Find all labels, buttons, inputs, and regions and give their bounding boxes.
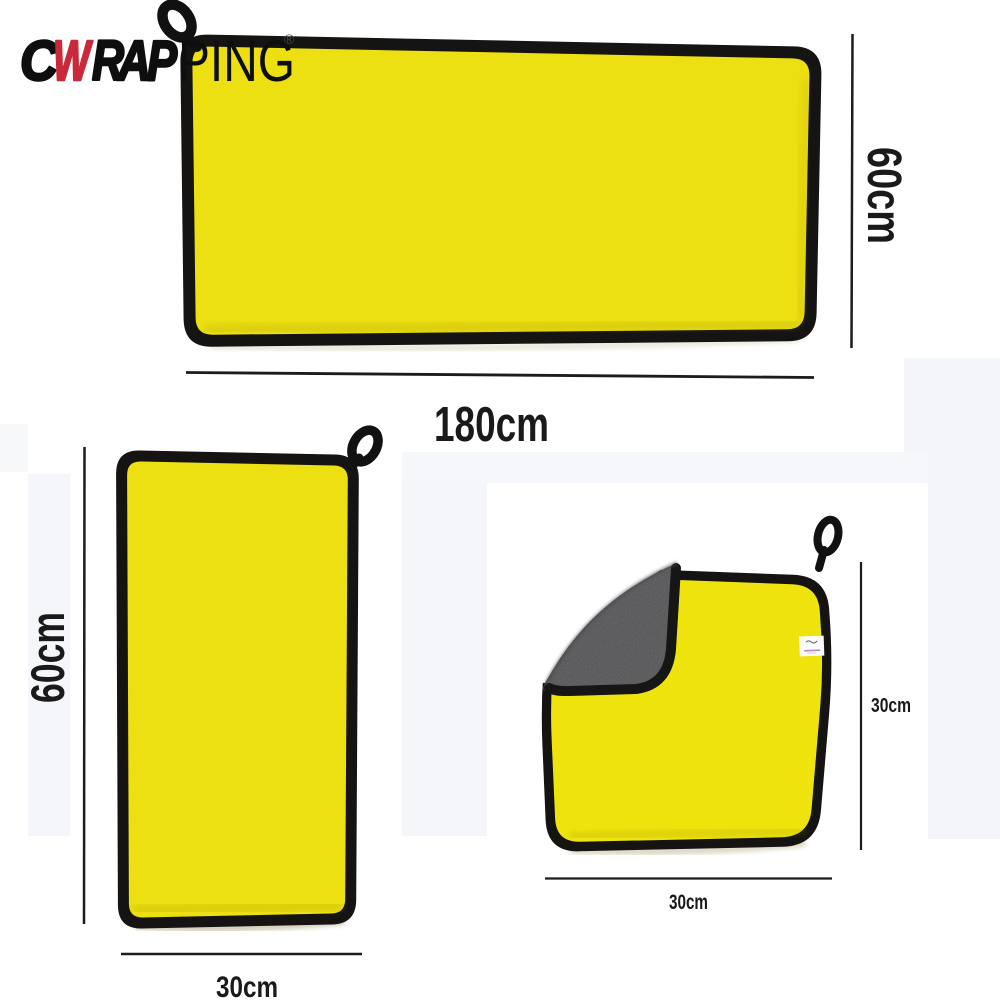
svg-text:W: W — [53, 29, 93, 93]
svg-text:A: A — [116, 29, 151, 93]
svg-text:®: ® — [284, 31, 295, 47]
svg-text:180cm: 180cm — [434, 398, 549, 452]
svg-text:60cm: 60cm — [21, 612, 74, 703]
svg-text:30cm: 30cm — [871, 695, 911, 717]
svg-text:60cm: 60cm — [857, 147, 910, 244]
svg-text:30cm: 30cm — [216, 971, 278, 1000]
svg-text:30cm: 30cm — [669, 891, 708, 914]
svg-text:PING: PING — [178, 29, 295, 94]
svg-text:P: P — [147, 29, 178, 93]
